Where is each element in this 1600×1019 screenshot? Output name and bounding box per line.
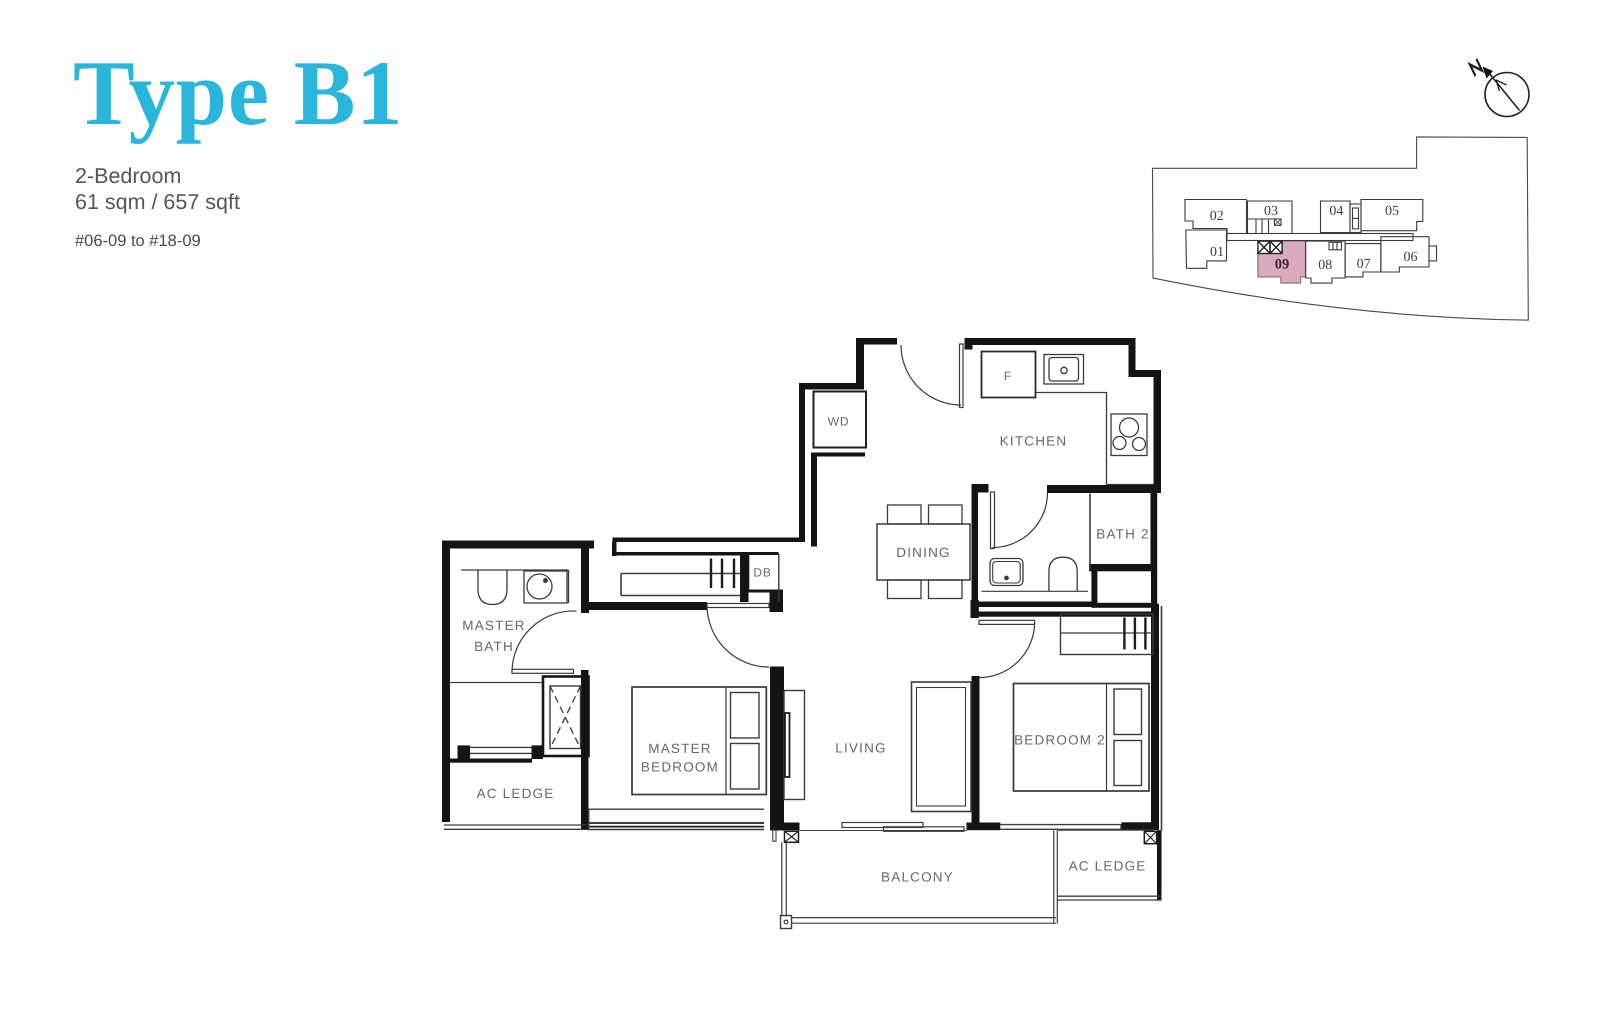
svg-text:BEDROOM: BEDROOM xyxy=(641,760,719,775)
svg-text:KITCHEN: KITCHEN xyxy=(1000,434,1068,449)
svg-text:MASTER: MASTER xyxy=(648,741,711,756)
svg-text:BEDROOM 2: BEDROOM 2 xyxy=(1014,733,1106,748)
svg-text:06: 06 xyxy=(1404,250,1418,265)
svg-text:07: 07 xyxy=(1357,257,1371,272)
svg-text:03: 03 xyxy=(1264,204,1278,219)
svg-text:08: 08 xyxy=(1318,258,1332,273)
svg-text:MASTER: MASTER xyxy=(462,618,525,633)
svg-text:09: 09 xyxy=(1275,257,1290,273)
svg-text:2-Bedroom: 2-Bedroom xyxy=(75,164,181,188)
svg-text:02: 02 xyxy=(1210,209,1224,224)
svg-text:BATH: BATH xyxy=(474,639,514,654)
svg-text:BALCONY: BALCONY xyxy=(881,870,954,885)
svg-text:F: F xyxy=(1004,369,1012,383)
svg-text:Type B1: Type B1 xyxy=(73,43,403,145)
svg-text:01: 01 xyxy=(1210,245,1224,260)
svg-text:LIVING: LIVING xyxy=(835,741,886,756)
svg-text:DINING: DINING xyxy=(896,545,950,560)
svg-text:BATH 2: BATH 2 xyxy=(1096,527,1149,542)
svg-text:04: 04 xyxy=(1329,204,1343,219)
svg-text:05: 05 xyxy=(1385,204,1399,219)
svg-text:WD: WD xyxy=(828,415,850,429)
svg-text:DB: DB xyxy=(753,566,771,580)
svg-text:AC LEDGE: AC LEDGE xyxy=(477,786,555,801)
svg-text:61 sqm / 657 sqft: 61 sqm / 657 sqft xyxy=(75,190,240,214)
svg-text:#06-09 to #18-09: #06-09 to #18-09 xyxy=(75,232,201,250)
svg-text:AC LEDGE: AC LEDGE xyxy=(1069,859,1147,874)
